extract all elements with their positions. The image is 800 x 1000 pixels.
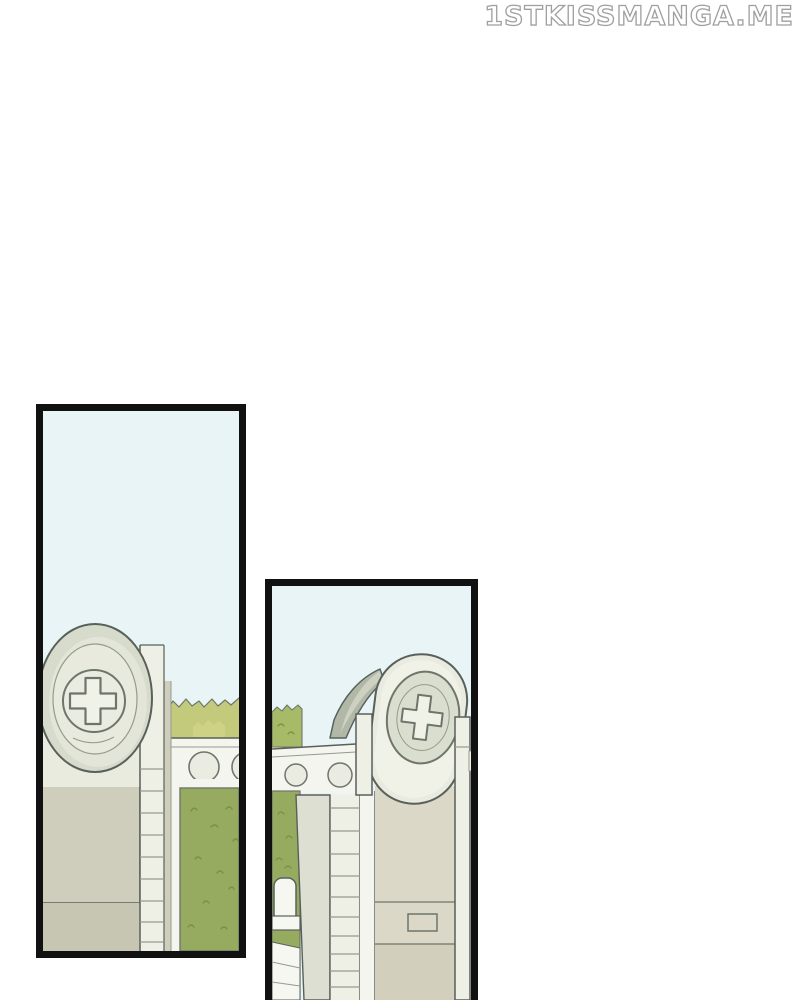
- gate-wall: [272, 744, 356, 793]
- comic-panel-2: [265, 579, 478, 1000]
- hedge: [171, 779, 239, 951]
- tower-body: [375, 786, 456, 1000]
- porthole-circle-icon: [285, 764, 307, 786]
- manga-page: 1STKISSMANGA.ME: [0, 0, 800, 1000]
- bush-left: [272, 705, 302, 747]
- porthole-circle-icon: [328, 763, 352, 787]
- porthole-circle-icon: [189, 752, 219, 782]
- gate-post-right: [455, 717, 471, 1000]
- site-watermark: 1STKISSMANGA.ME: [484, 1, 794, 32]
- gate-post-left: [356, 714, 372, 795]
- panel-2-art: [272, 586, 471, 1000]
- panel-1-art: [43, 411, 239, 951]
- cross-medallion: [43, 624, 152, 772]
- wall-strip: [360, 795, 375, 1000]
- ladder-column: [330, 795, 360, 1000]
- comic-panel-1: [36, 404, 246, 958]
